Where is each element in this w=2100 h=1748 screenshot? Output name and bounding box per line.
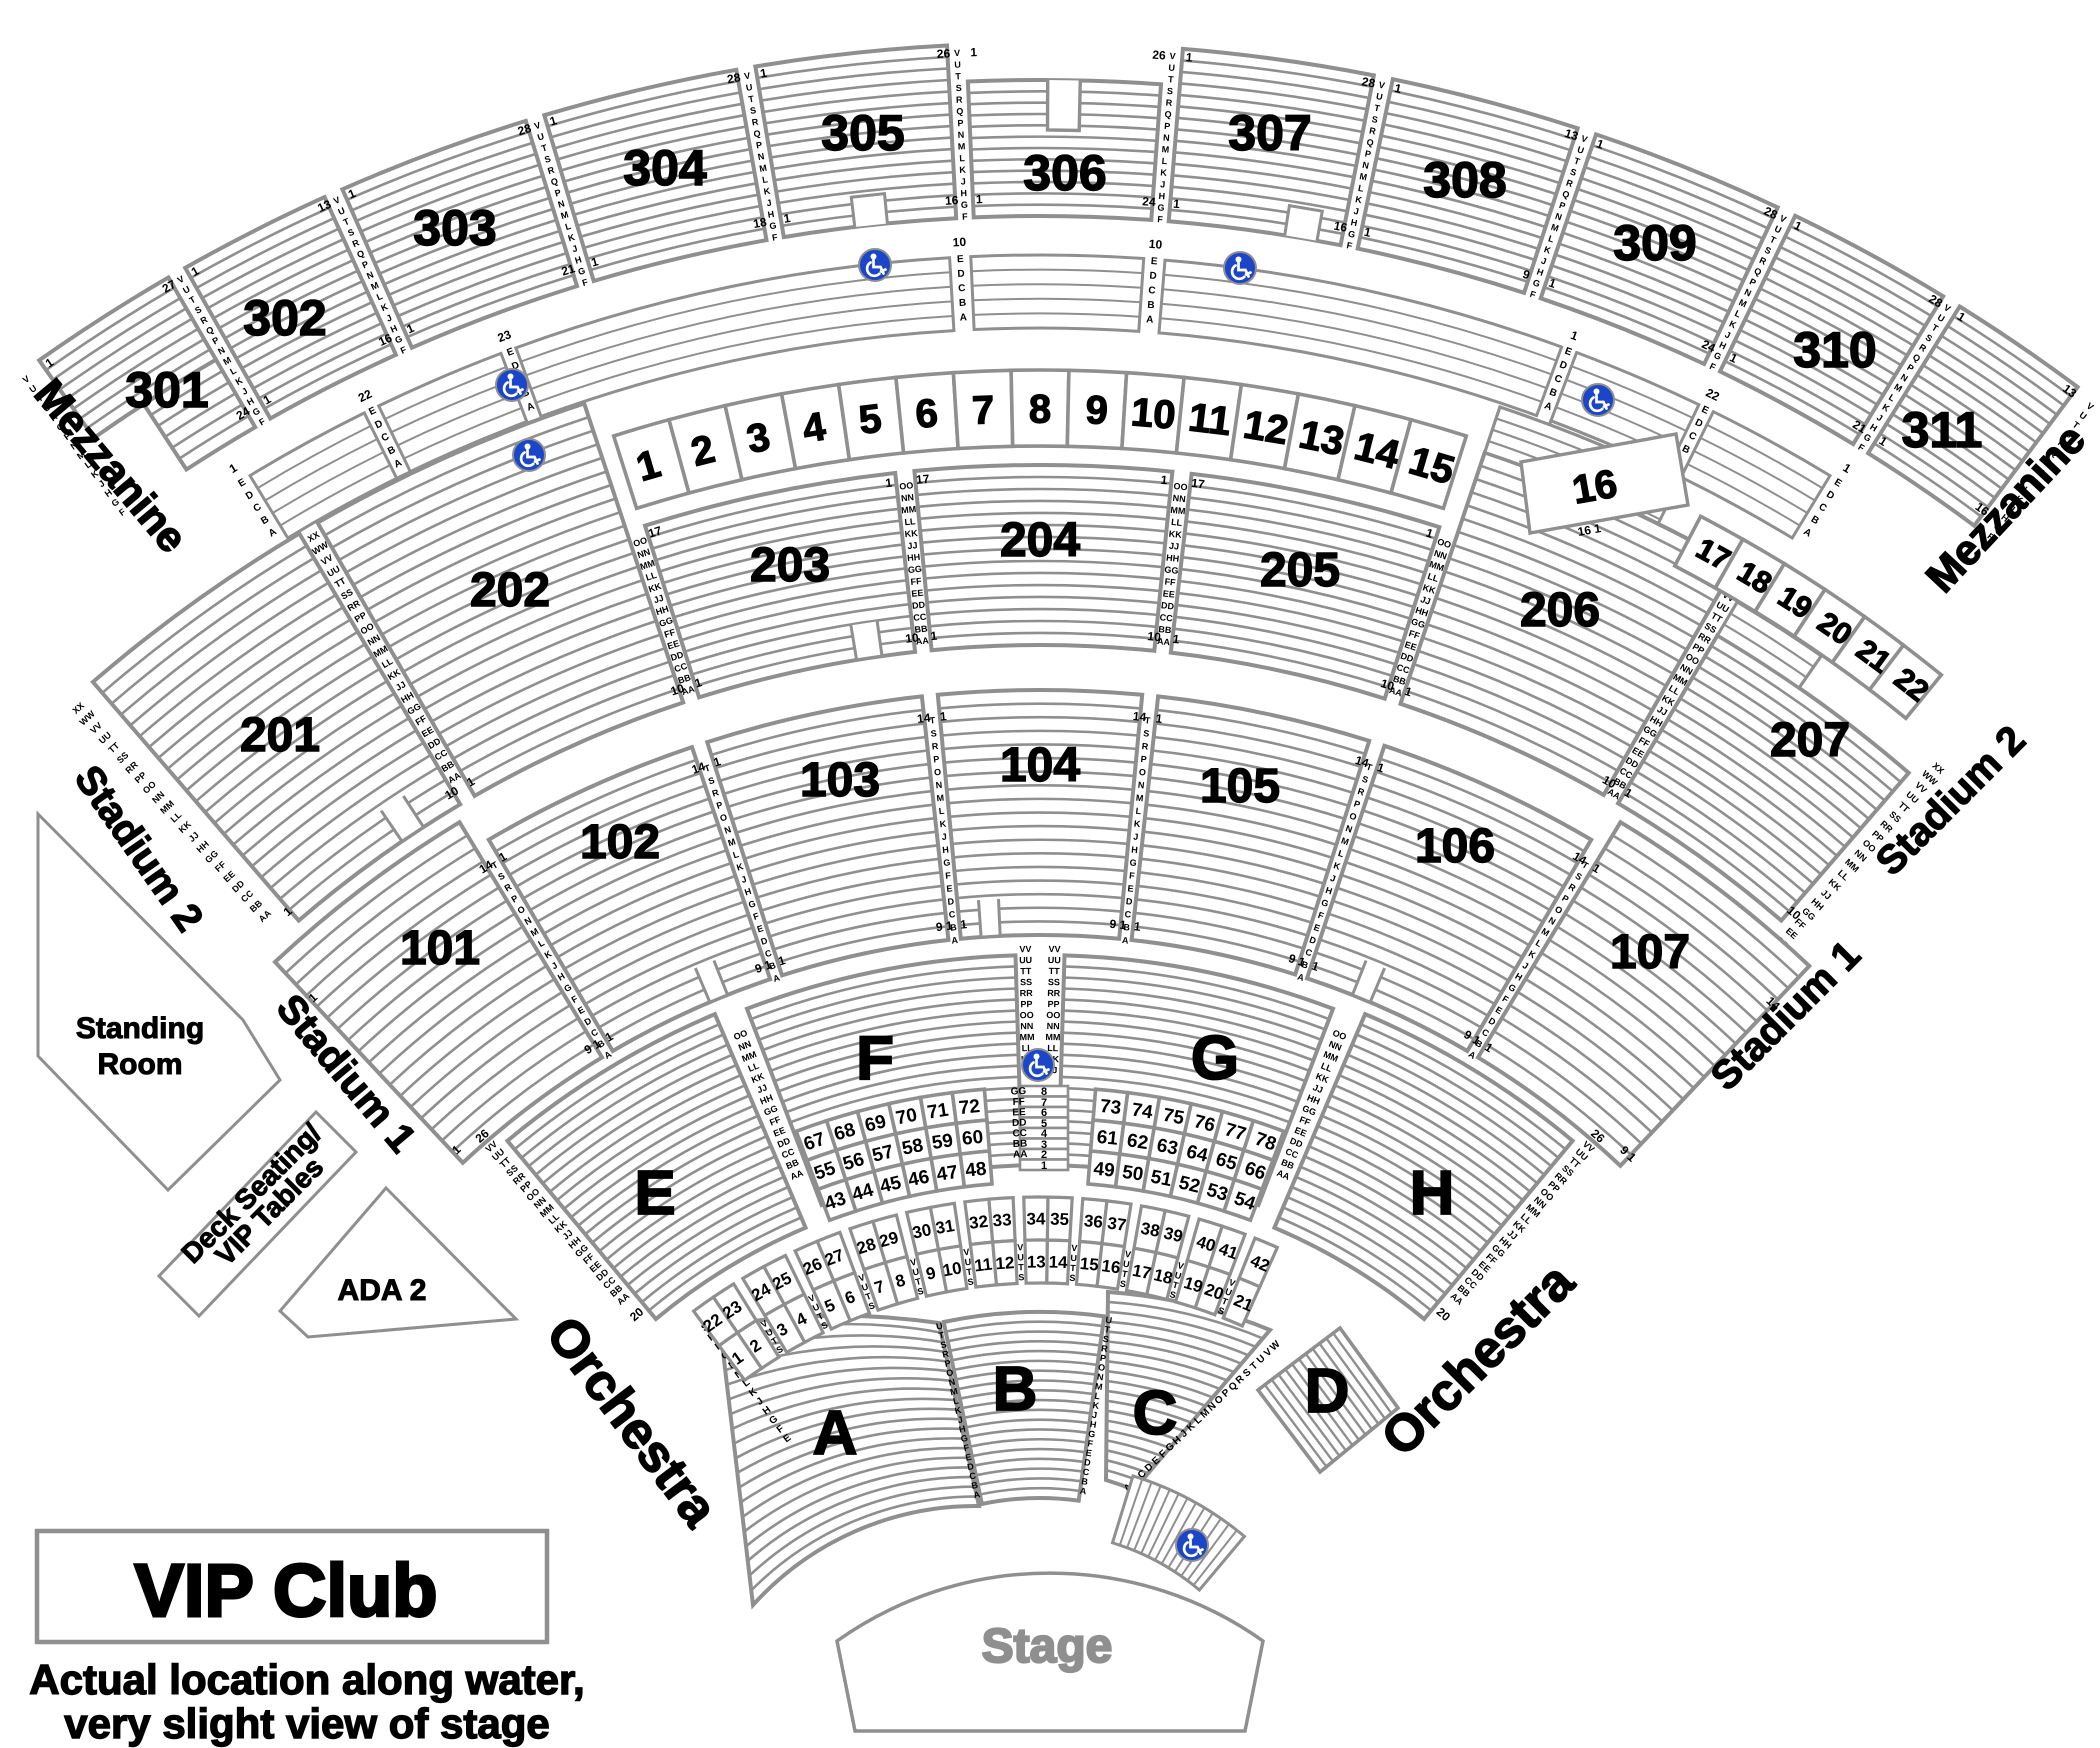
svg-text:17: 17 <box>1191 476 1206 492</box>
svg-text:SS: SS <box>1048 977 1060 987</box>
svg-text:38: 38 <box>1139 1219 1161 1241</box>
svg-text:KK: KK <box>1168 529 1183 540</box>
svg-text:S: S <box>930 728 937 739</box>
svg-text:P: P <box>933 754 940 765</box>
svg-text:Q: Q <box>1164 109 1172 120</box>
svg-text:SS: SS <box>1020 977 1032 987</box>
svg-text:16: 16 <box>1569 462 1620 513</box>
svg-text:Q: Q <box>956 106 963 116</box>
svg-text:203: 203 <box>750 539 830 592</box>
svg-text:DD: DD <box>1161 600 1176 611</box>
svg-text:N: N <box>957 130 964 140</box>
svg-text:UU: UU <box>1048 955 1061 965</box>
svg-text:G: G <box>1157 202 1165 213</box>
svg-text:LL: LL <box>1047 1043 1059 1053</box>
svg-text:102: 102 <box>580 816 660 869</box>
svg-text:C: C <box>1133 1379 1178 1448</box>
svg-text:M: M <box>1135 793 1143 804</box>
svg-text:HH: HH <box>1166 553 1180 564</box>
svg-text:OO: OO <box>1173 481 1188 492</box>
svg-text:M: M <box>958 141 966 151</box>
svg-text:NN: NN <box>1172 493 1186 504</box>
svg-text:205: 205 <box>1260 544 1340 597</box>
svg-text:S: S <box>1069 1273 1076 1283</box>
svg-text:71: 71 <box>926 1100 950 1124</box>
svg-text:OO: OO <box>1046 1010 1060 1020</box>
svg-text:V: V <box>1071 1243 1078 1253</box>
svg-text:G: G <box>961 200 968 210</box>
svg-text:103: 103 <box>800 754 880 807</box>
svg-text:16: 16 <box>1100 1256 1121 1277</box>
svg-text:202: 202 <box>470 564 550 617</box>
svg-text:10: 10 <box>1147 629 1162 644</box>
svg-text:MM: MM <box>1170 505 1186 517</box>
svg-text:U: U <box>1070 1253 1077 1263</box>
svg-text:7: 7 <box>971 388 995 433</box>
svg-text:GG: GG <box>1164 564 1179 575</box>
svg-text:V: V <box>954 48 960 58</box>
svg-text:Actual location along water,: Actual location along water, <box>29 1656 584 1703</box>
svg-text:J: J <box>941 832 947 842</box>
svg-text:1: 1 <box>1041 1160 1047 1172</box>
svg-text:JJ: JJ <box>1169 541 1180 552</box>
svg-text:C: C <box>1148 285 1156 297</box>
svg-text:33: 33 <box>992 1210 1012 1230</box>
svg-text:PP: PP <box>1020 999 1032 1009</box>
svg-text:26: 26 <box>936 46 950 61</box>
svg-text:V: V <box>1017 1242 1023 1252</box>
svg-text:L: L <box>959 153 965 163</box>
svg-text:1: 1 <box>970 45 978 59</box>
svg-text:H: H <box>1410 1159 1455 1228</box>
svg-text:LL: LL <box>904 516 916 527</box>
svg-text:11: 11 <box>973 1255 993 1276</box>
svg-text:46: 46 <box>906 1166 931 1191</box>
svg-text:FF: FF <box>1164 576 1177 587</box>
svg-text:15: 15 <box>1079 1254 1100 1275</box>
svg-text:C: C <box>958 283 966 294</box>
svg-text:304: 304 <box>623 140 707 196</box>
svg-text:204: 204 <box>1000 514 1080 567</box>
svg-text:EE: EE <box>1162 588 1175 599</box>
svg-text:D: D <box>957 269 965 280</box>
svg-text:MM: MM <box>1045 1032 1060 1042</box>
svg-text:10: 10 <box>952 235 966 250</box>
svg-text:EE: EE <box>911 588 924 599</box>
svg-text:DD: DD <box>912 600 926 611</box>
svg-text:16: 16 <box>945 193 959 208</box>
svg-text:Room: Room <box>98 1048 183 1081</box>
svg-text:106: 106 <box>1415 820 1495 873</box>
svg-text:G: G <box>1129 857 1137 868</box>
svg-text:J: J <box>1133 832 1139 842</box>
svg-text:D: D <box>1305 1357 1350 1426</box>
svg-text:10: 10 <box>905 630 920 645</box>
svg-text:VV: VV <box>1048 944 1060 954</box>
svg-text:O: O <box>934 767 942 778</box>
svg-text:U: U <box>954 60 961 70</box>
svg-text:M: M <box>936 793 944 804</box>
svg-text:14: 14 <box>1048 1252 1068 1272</box>
svg-text:303: 303 <box>413 200 496 256</box>
svg-text:CC: CC <box>913 612 927 623</box>
svg-text:UU: UU <box>1019 955 1032 965</box>
svg-text:13: 13 <box>1027 1252 1046 1271</box>
svg-text:9: 9 <box>1085 388 1109 433</box>
svg-text:NN: NN <box>901 492 915 503</box>
svg-text:S: S <box>1167 86 1174 96</box>
svg-text:TT: TT <box>1020 966 1032 976</box>
svg-text:30: 30 <box>911 1220 933 1243</box>
svg-text:8: 8 <box>1029 387 1051 431</box>
svg-text:107: 107 <box>1610 926 1690 979</box>
svg-text:14: 14 <box>1132 709 1147 724</box>
svg-text:36: 36 <box>1083 1211 1104 1232</box>
svg-text:VIP Club: VIP Club <box>135 1549 438 1632</box>
svg-text:ADA 2: ADA 2 <box>338 1274 427 1307</box>
svg-text:48: 48 <box>964 1159 987 1182</box>
svg-text:14: 14 <box>916 711 931 726</box>
svg-text:104: 104 <box>1000 739 1080 792</box>
svg-text:MM: MM <box>1019 1032 1034 1042</box>
svg-text:Stage: Stage <box>982 1620 1113 1673</box>
svg-text:FF: FF <box>910 576 922 587</box>
svg-text:P: P <box>1140 754 1147 765</box>
svg-text:S: S <box>1018 1272 1024 1282</box>
svg-text:N: N <box>1163 132 1170 142</box>
svg-text:63: 63 <box>1155 1135 1180 1160</box>
svg-text:A: A <box>959 312 967 323</box>
svg-text:62: 62 <box>1126 1130 1150 1154</box>
svg-text:P: P <box>957 118 963 128</box>
svg-text:F: F <box>856 1024 894 1093</box>
svg-text:RR: RR <box>1047 988 1061 998</box>
svg-text:U: U <box>1168 63 1175 73</box>
svg-text:E: E <box>634 1159 675 1228</box>
svg-text:VV: VV <box>1019 944 1031 954</box>
svg-text:KK: KK <box>904 528 918 539</box>
svg-text:12: 12 <box>1240 403 1291 454</box>
svg-text:T: T <box>955 71 961 81</box>
svg-text:12: 12 <box>995 1253 1015 1273</box>
svg-text:6: 6 <box>914 391 940 437</box>
svg-text:308: 308 <box>1423 152 1506 208</box>
svg-text:E: E <box>1150 256 1158 267</box>
svg-text:NN: NN <box>1047 1021 1060 1031</box>
svg-text:17: 17 <box>915 472 930 487</box>
svg-text:RR: RR <box>1020 988 1034 998</box>
svg-text:B: B <box>993 1355 1038 1424</box>
svg-text:35: 35 <box>1050 1209 1070 1229</box>
svg-text:HH: HH <box>907 552 921 563</box>
svg-text:N: N <box>935 780 942 791</box>
svg-text:31: 31 <box>934 1216 956 1238</box>
svg-text:11: 11 <box>1186 395 1233 444</box>
svg-text:P: P <box>1164 121 1171 131</box>
svg-text:R: R <box>956 95 963 105</box>
svg-text:E: E <box>957 254 965 265</box>
svg-text:K: K <box>1160 167 1168 178</box>
svg-text:B: B <box>1147 300 1155 312</box>
svg-text:70: 70 <box>894 1105 919 1130</box>
svg-text:K: K <box>959 165 966 175</box>
svg-text:PP: PP <box>1047 999 1059 1009</box>
svg-text:60: 60 <box>961 1127 984 1150</box>
svg-text:TT: TT <box>1049 966 1061 976</box>
svg-text:LL: LL <box>1171 517 1184 528</box>
svg-text:50: 50 <box>1121 1162 1145 1186</box>
svg-text:305: 305 <box>821 105 904 161</box>
svg-text:9 1: 9 1 <box>935 918 953 934</box>
svg-text:JJ: JJ <box>907 540 918 551</box>
svg-text:37: 37 <box>1106 1214 1127 1235</box>
svg-text:301: 301 <box>125 362 208 418</box>
svg-text:T: T <box>1018 1262 1024 1272</box>
svg-text:10: 10 <box>1148 237 1163 252</box>
svg-text:G: G <box>1191 1024 1239 1093</box>
svg-text:U: U <box>1017 1252 1024 1262</box>
svg-text:E: E <box>946 883 953 894</box>
svg-text:A: A <box>1146 314 1154 326</box>
svg-text:J: J <box>1160 179 1166 189</box>
svg-text:61: 61 <box>1096 1127 1120 1150</box>
svg-text:9 1: 9 1 <box>1109 917 1127 932</box>
svg-text:J: J <box>961 176 966 186</box>
svg-text:M: M <box>1161 144 1169 155</box>
svg-text:73: 73 <box>1099 1096 1122 1119</box>
svg-text:F: F <box>962 211 968 221</box>
svg-text:very slight view of stage: very slight view of stage <box>64 1700 550 1747</box>
svg-text:V: V <box>1169 51 1176 61</box>
svg-text:105: 105 <box>1200 760 1280 813</box>
svg-text:310: 310 <box>1793 322 1876 378</box>
svg-text:Standing: Standing <box>76 1012 204 1045</box>
svg-text:49: 49 <box>1092 1159 1115 1182</box>
svg-text:H: H <box>960 188 967 198</box>
svg-text:H: H <box>1131 845 1138 856</box>
svg-text:24: 24 <box>1142 194 1157 209</box>
svg-text:AA: AA <box>1013 1149 1028 1160</box>
svg-text:S: S <box>1143 728 1150 739</box>
svg-text:D: D <box>1149 271 1157 283</box>
svg-text:201: 201 <box>240 709 320 762</box>
svg-text:28: 28 <box>726 70 742 86</box>
svg-text:26: 26 <box>1152 48 1167 63</box>
svg-text:311: 311 <box>1902 402 1983 458</box>
svg-text:CC: CC <box>1159 612 1174 623</box>
svg-text:10: 10 <box>941 1258 963 1280</box>
svg-text:OO: OO <box>1020 1010 1034 1020</box>
svg-text:A: A <box>813 1399 858 1468</box>
svg-text:59: 59 <box>930 1130 954 1154</box>
svg-text:307: 307 <box>1228 105 1311 161</box>
svg-text:G: G <box>943 857 951 868</box>
svg-text:18: 18 <box>752 215 768 231</box>
svg-text:17: 17 <box>1131 1261 1153 1283</box>
svg-text:74: 74 <box>1130 1100 1154 1124</box>
svg-text:309: 309 <box>1613 215 1696 271</box>
svg-text:O: O <box>1138 767 1146 778</box>
svg-text:B: B <box>959 298 967 309</box>
svg-text:32: 32 <box>968 1212 989 1233</box>
svg-text:13: 13 <box>1295 412 1347 464</box>
svg-text:S: S <box>956 83 962 93</box>
svg-text:H: H <box>942 845 949 856</box>
svg-text:E: E <box>1127 883 1134 894</box>
svg-text:N: N <box>1137 780 1144 791</box>
svg-text:R: R <box>1165 97 1173 108</box>
svg-text:306: 306 <box>1023 145 1106 201</box>
svg-text:101: 101 <box>400 922 480 975</box>
svg-text:H: H <box>1158 191 1165 201</box>
svg-text:1: 1 <box>976 192 984 206</box>
svg-text:302: 302 <box>243 290 326 346</box>
svg-text:47: 47 <box>935 1162 959 1186</box>
svg-text:207: 207 <box>1770 714 1850 767</box>
svg-text:72: 72 <box>958 1096 981 1119</box>
svg-text:GG: GG <box>907 564 922 575</box>
svg-text:OO: OO <box>899 480 914 491</box>
svg-text:58: 58 <box>900 1135 925 1160</box>
svg-text:MM: MM <box>901 504 917 515</box>
svg-text:34: 34 <box>1026 1209 1046 1228</box>
svg-text:NN: NN <box>1020 1021 1033 1031</box>
svg-text:10: 10 <box>1129 390 1177 437</box>
svg-text:206: 206 <box>1520 584 1600 637</box>
